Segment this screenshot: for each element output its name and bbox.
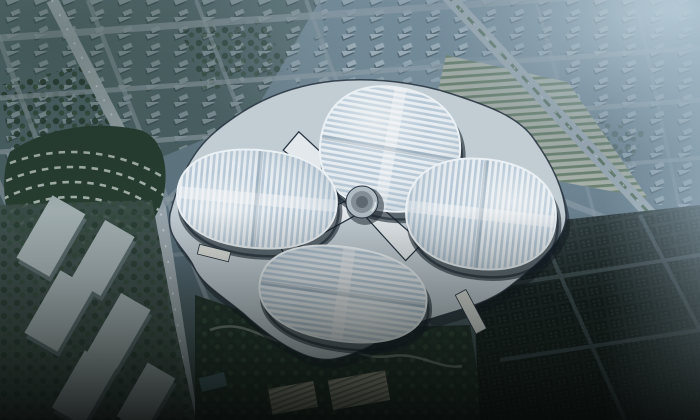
aerial-render-image bbox=[0, 0, 700, 420]
scene-canvas bbox=[0, 0, 700, 420]
bottom-vignette bbox=[0, 0, 700, 420]
